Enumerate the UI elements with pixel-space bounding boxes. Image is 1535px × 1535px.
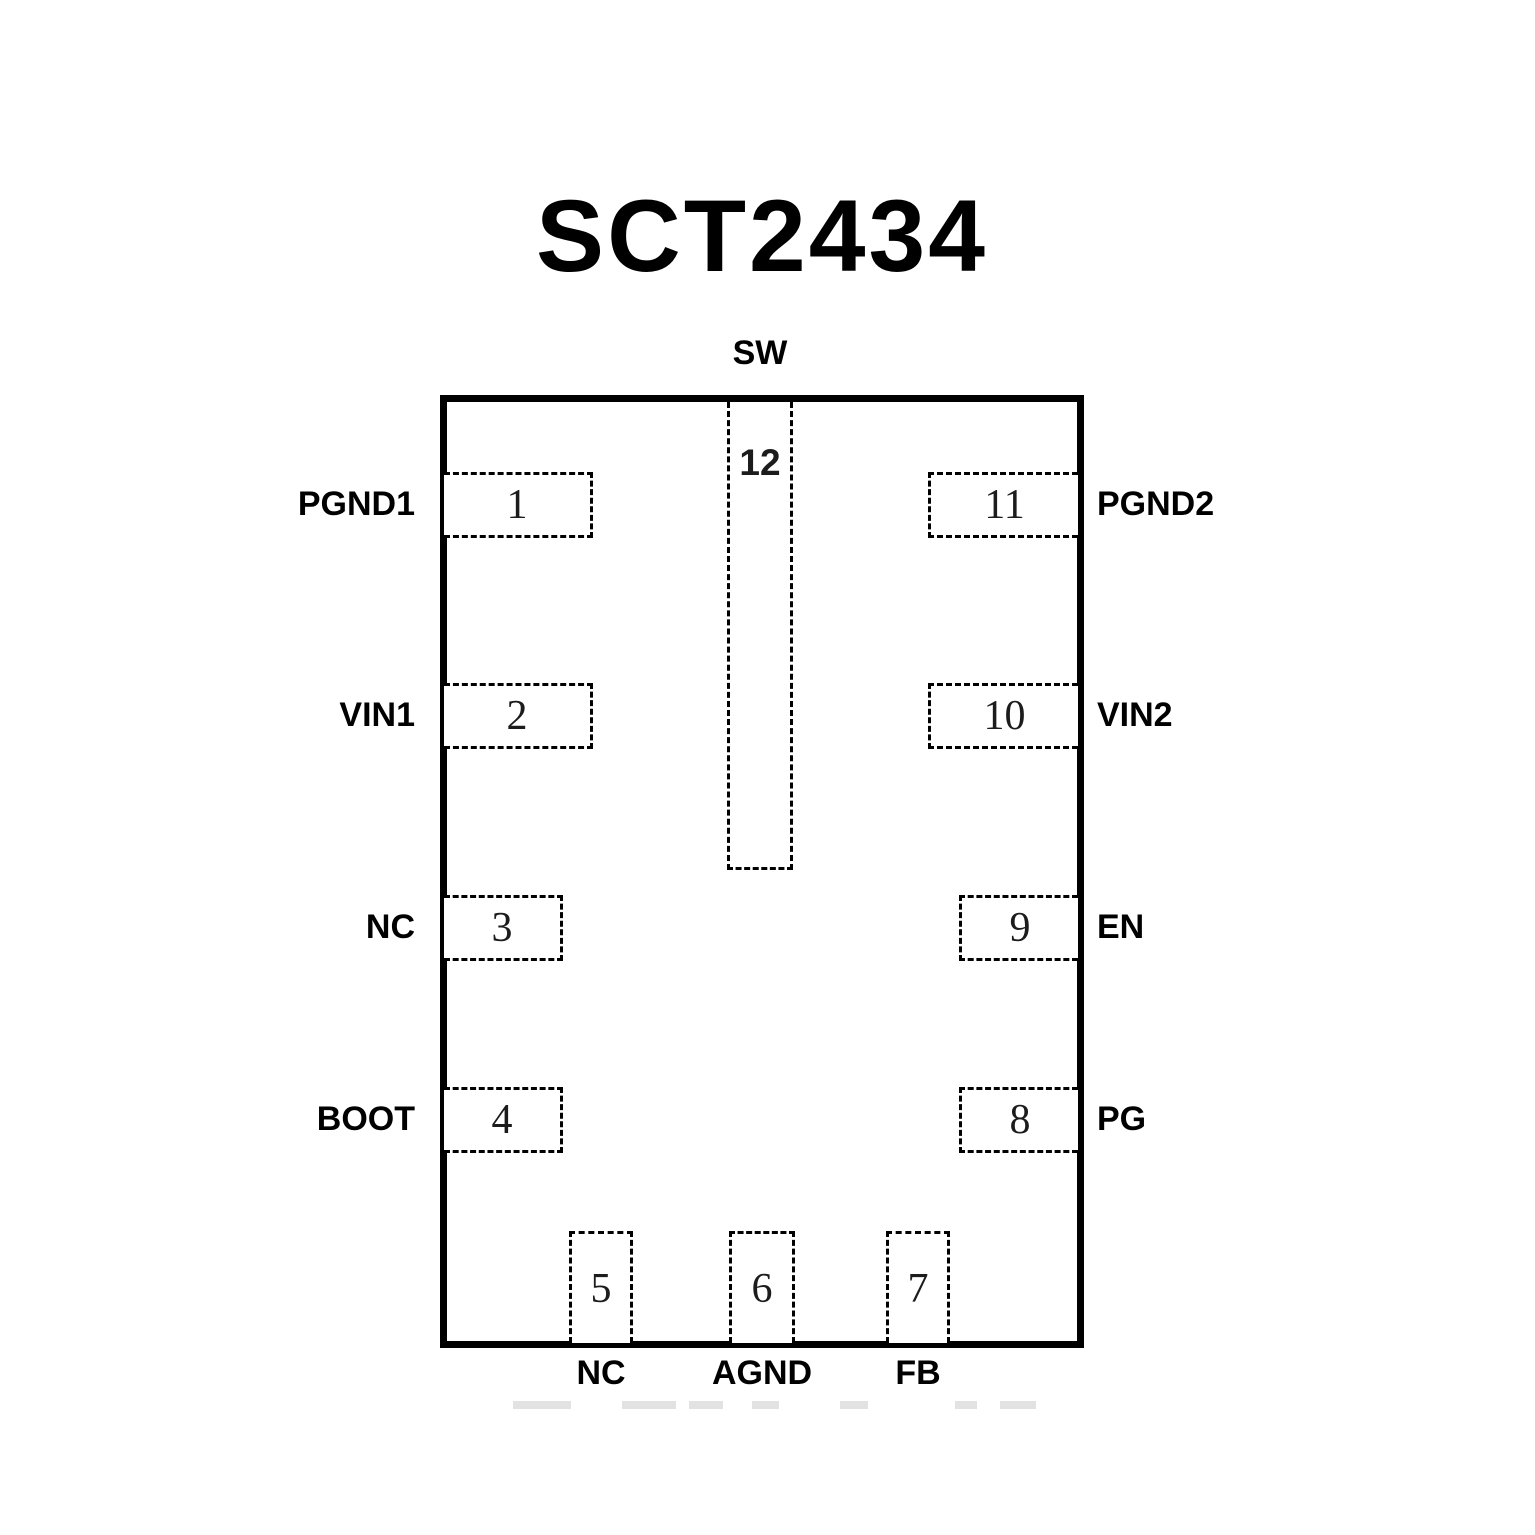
pad-10-vin2: 10	[928, 683, 1078, 749]
pin-label-fb: FB	[808, 1352, 1028, 1394]
pin-label-pg: PG	[1097, 1098, 1337, 1140]
pad-6-agnd: 6	[729, 1231, 795, 1343]
pin-number-1: 1	[507, 484, 528, 526]
cropped-text-remnant	[689, 1401, 723, 1409]
pin-label-sw: SW	[650, 332, 870, 374]
pin-number-3: 3	[492, 907, 513, 949]
pin-label-pgnd1: PGND1	[195, 483, 415, 525]
pad-3-nc: 3	[444, 895, 563, 961]
chip-title: SCT2434	[0, 183, 1524, 290]
pin-number-2: 2	[507, 695, 528, 737]
cropped-text-remnant	[1000, 1401, 1036, 1409]
pin-number-10: 10	[984, 695, 1026, 737]
pad-11-pgnd2: 11	[928, 472, 1078, 538]
pin-label-boot: BOOT	[195, 1098, 415, 1140]
pad-8-pg: 8	[959, 1087, 1078, 1153]
pin-number-6: 6	[752, 1268, 773, 1310]
pad-7-fb: 7	[886, 1231, 950, 1343]
pin-number-8: 8	[1010, 1099, 1031, 1141]
cropped-text-remnant	[955, 1401, 977, 1409]
cropped-text-remnant	[513, 1401, 571, 1409]
pinout-diagram-page: SCT2434 SW 12 1 2 3 4 11 10 9 8 5 6 7 PG…	[0, 0, 1535, 1535]
pad-12-sw: 12	[727, 402, 793, 870]
pad-1-pgnd1: 1	[444, 472, 593, 538]
pad-5-nc: 5	[569, 1231, 633, 1343]
pad-9-en: 9	[959, 895, 1078, 961]
pin-number-9: 9	[1010, 907, 1031, 949]
pin-number-12: 12	[739, 444, 780, 481]
cropped-text-remnant	[752, 1401, 779, 1409]
cropped-text-remnant	[840, 1401, 868, 1409]
pin-number-5: 5	[591, 1268, 612, 1310]
cropped-text-remnant	[622, 1401, 676, 1409]
pin-label-en: EN	[1097, 906, 1337, 948]
pad-4-boot: 4	[444, 1087, 563, 1153]
pin-number-11: 11	[984, 484, 1024, 526]
pin-label-vin2: VIN2	[1097, 694, 1337, 736]
pin-number-7: 7	[908, 1268, 929, 1310]
pin-label-vin1: VIN1	[195, 694, 415, 736]
pin-label-pgnd2: PGND2	[1097, 483, 1337, 525]
pin-label-nc-3: NC	[195, 906, 415, 948]
pad-2-vin1: 2	[444, 683, 593, 749]
pin-number-4: 4	[492, 1099, 513, 1141]
